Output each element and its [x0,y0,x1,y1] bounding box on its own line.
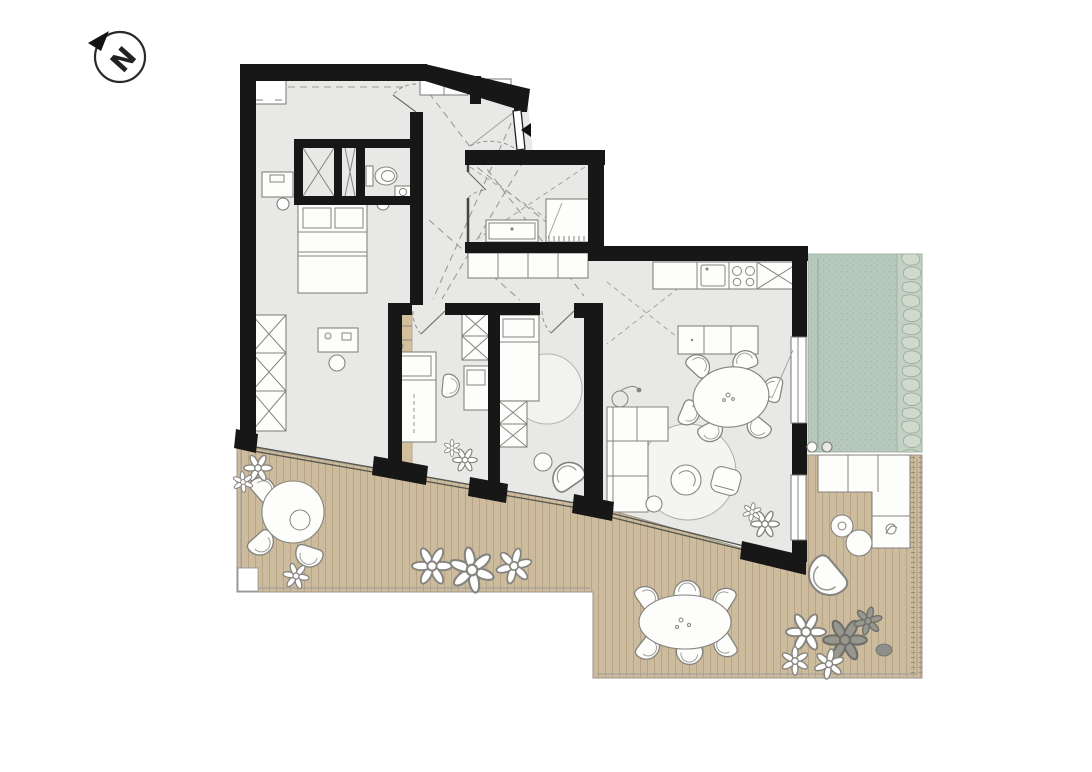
deck-fixture [807,442,817,452]
wardrobe [499,401,527,447]
wardrobe [252,315,286,431]
side-table [846,530,872,556]
floor-plan-page: N [0,0,1092,772]
outdoor-dining-table [633,580,740,666]
deck-corner-hatch [238,568,258,591]
corridor-wardrobe-row [468,253,588,278]
wardrobe [462,312,489,360]
kitchen-counter [653,262,800,289]
wall-sconce [277,198,289,210]
single-bed [499,315,539,401]
coffee-table [671,465,701,495]
vanity [486,220,538,242]
planted-area [808,254,922,452]
pebble-border [897,254,922,452]
stool [329,355,345,371]
floor-plan: N [0,0,1092,772]
desk [464,366,489,410]
toilet [366,166,397,186]
sofa-armrest [646,496,662,512]
double-bed [298,203,367,293]
green-fixture [822,442,832,452]
side-table [534,453,552,471]
dresser [262,172,293,197]
plant [876,644,892,656]
north-arrow-icon: N [88,31,145,82]
sideboard [678,326,758,354]
shower [546,199,589,242]
deck-edge-texture [911,456,922,677]
